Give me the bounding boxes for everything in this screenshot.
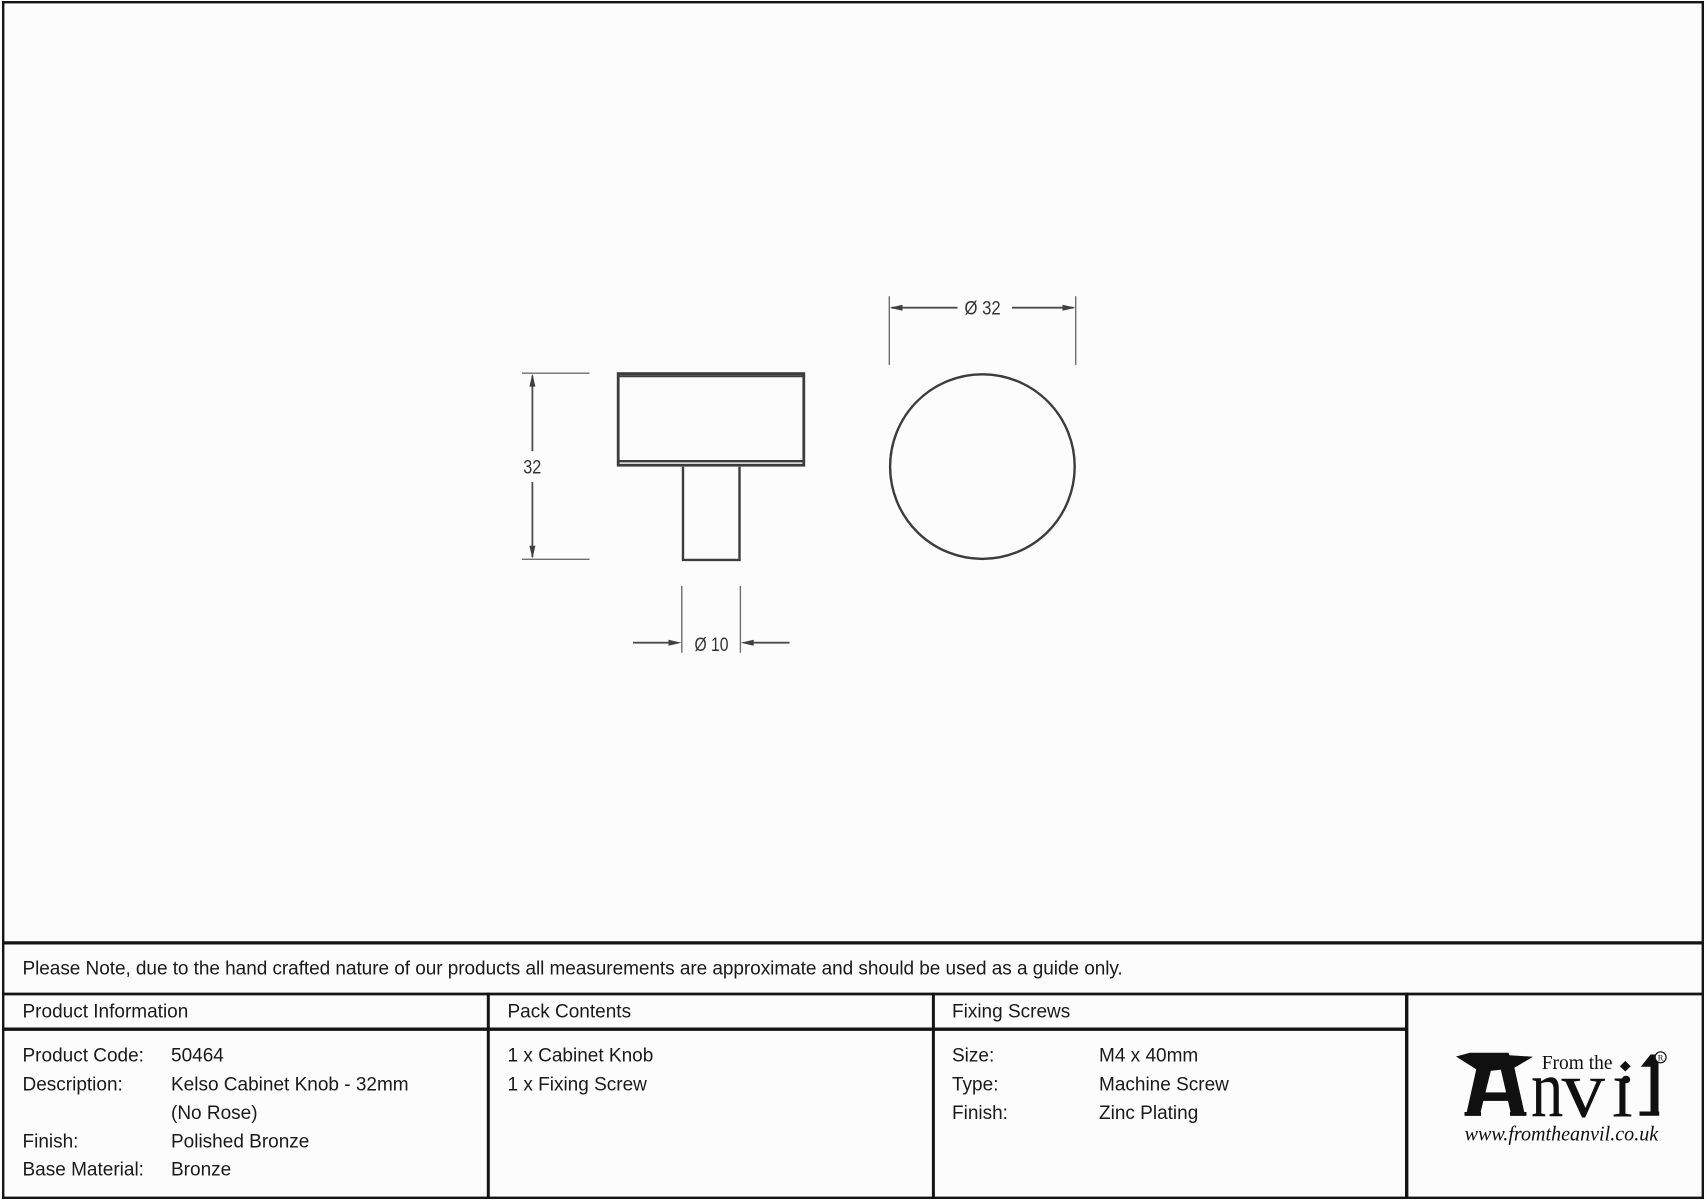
svg-text:R: R [1658, 1052, 1664, 1062]
svg-text:www.fromtheanvil.co.uk: www.fromtheanvil.co.uk [1465, 1122, 1659, 1146]
svg-text:Type:: Type: [952, 1074, 998, 1095]
svg-text:From the: From the [1542, 1052, 1613, 1074]
svg-text:Ø 10: Ø 10 [695, 634, 729, 656]
svg-text:Product Information: Product Information [23, 1002, 189, 1023]
svg-text:Fixing Screws: Fixing Screws [952, 1002, 1070, 1023]
svg-text:Size:: Size: [952, 1046, 994, 1067]
svg-text:M4 x 40mm: M4 x 40mm [1099, 1046, 1198, 1067]
svg-text:1 x Cabinet Knob: 1 x Cabinet Knob [508, 1046, 654, 1067]
svg-text:Zinc Plating: Zinc Plating [1099, 1103, 1198, 1124]
svg-text:Finish:: Finish: [23, 1131, 79, 1152]
svg-text:Base Material:: Base Material: [23, 1160, 144, 1181]
svg-text:50464: 50464 [171, 1046, 224, 1067]
svg-text:Machine Screw: Machine Screw [1099, 1074, 1229, 1095]
svg-text:Please Note, due to the hand c: Please Note, due to the hand crafted nat… [23, 959, 1123, 980]
svg-text:Ø 32: Ø 32 [965, 297, 1001, 319]
svg-text:Kelso Cabinet Knob - 32mm: Kelso Cabinet Knob - 32mm [171, 1074, 409, 1095]
svg-text:Description:: Description: [23, 1074, 123, 1095]
svg-text:Pack Contents: Pack Contents [508, 1002, 632, 1023]
svg-text:32: 32 [523, 457, 541, 479]
svg-text:Polished Bronze: Polished Bronze [171, 1131, 309, 1152]
svg-text:(No Rose): (No Rose) [171, 1103, 258, 1124]
svg-text:1 x Fixing Screw: 1 x Fixing Screw [508, 1074, 648, 1095]
svg-text:Product Code:: Product Code: [23, 1046, 144, 1067]
svg-text:Finish:: Finish: [952, 1103, 1008, 1124]
svg-text:Bronze: Bronze [171, 1160, 231, 1181]
